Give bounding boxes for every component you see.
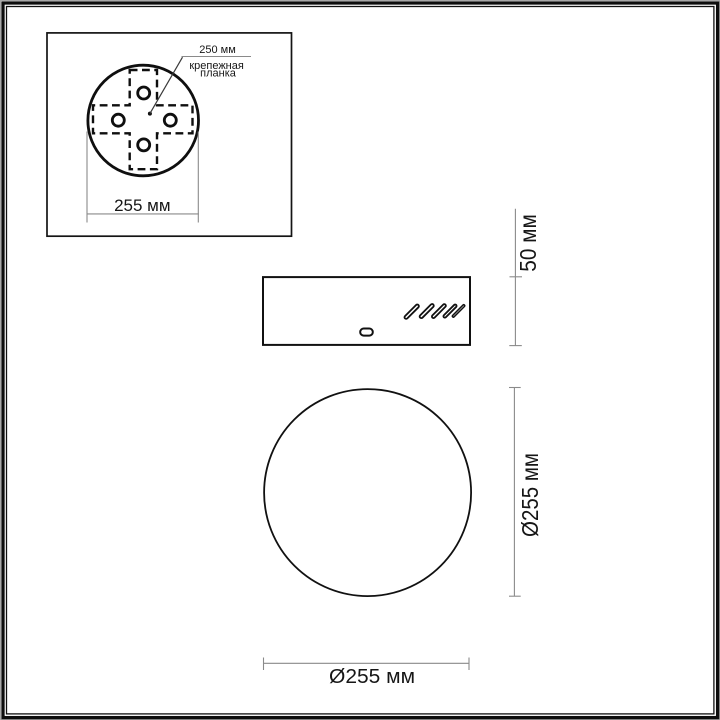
svg-text:250 мм: 250 мм	[199, 44, 236, 56]
svg-text:50 мм: 50 мм	[515, 214, 541, 272]
svg-text:Ø255 мм: Ø255 мм	[517, 453, 543, 537]
svg-text:Ø255 мм: Ø255 мм	[329, 666, 415, 688]
svg-text:255 мм: 255 мм	[114, 196, 170, 215]
svg-text:планка: планка	[200, 67, 237, 79]
